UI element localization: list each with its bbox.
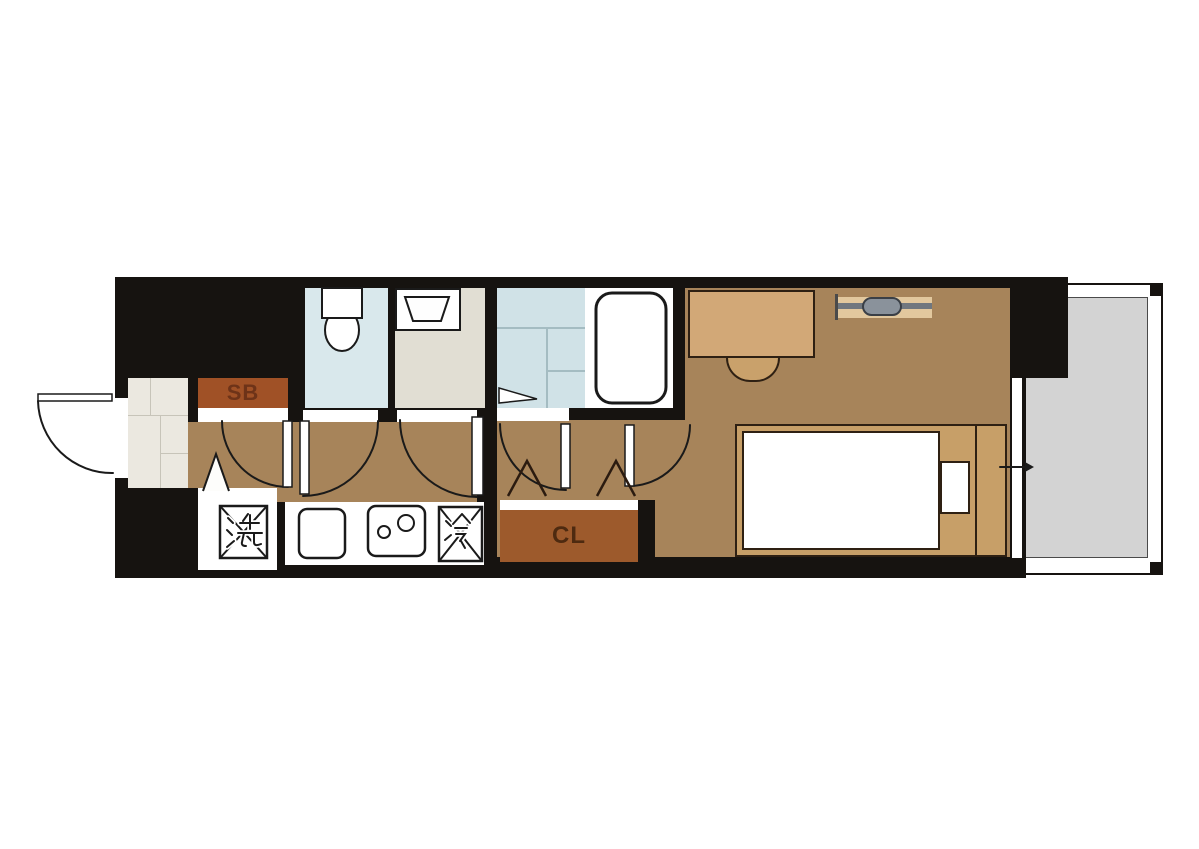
balcony-corner-post-top [1150,285,1163,296]
bathtub-room [585,288,673,408]
refrigerator-bay [437,502,484,565]
closet-side-wall [638,500,655,578]
toilet-room [305,288,388,408]
air-conditioner [862,297,902,316]
desk [688,290,815,358]
bed-headboard-line [975,424,977,557]
bed-pillow [940,461,970,514]
closet: CL [500,510,638,562]
shower-tile-line [546,370,585,372]
kitchen-floor-strip [277,488,477,502]
hallway-floor [188,422,477,488]
shower-tile-line [497,327,585,329]
tile-line [128,415,188,416]
washroom [395,288,485,408]
shower-room [497,288,585,408]
tile-line [160,453,188,454]
bed-mattress [742,431,940,550]
entry-doorway [115,398,128,478]
shoe-box-threshold [198,408,288,422]
shoe-box: SB [198,378,288,408]
tile-line [160,415,161,488]
floor-plan: SB CL [0,0,1199,849]
kitchen-counter [285,502,437,565]
air-conditioner-end-cap [835,294,838,320]
toilet-threshold [303,410,378,422]
closet-threshold [500,500,638,510]
tile-line [150,378,151,415]
entry-door-swing [38,401,113,473]
shower-tile-line [546,327,548,408]
washroom-threshold [397,410,477,422]
balcony-corner-post-bottom [1150,562,1163,573]
washer-bay [198,488,277,570]
entrance-floor [128,378,188,488]
sliding-window [1010,378,1024,558]
entry-door-leaf [38,394,112,401]
